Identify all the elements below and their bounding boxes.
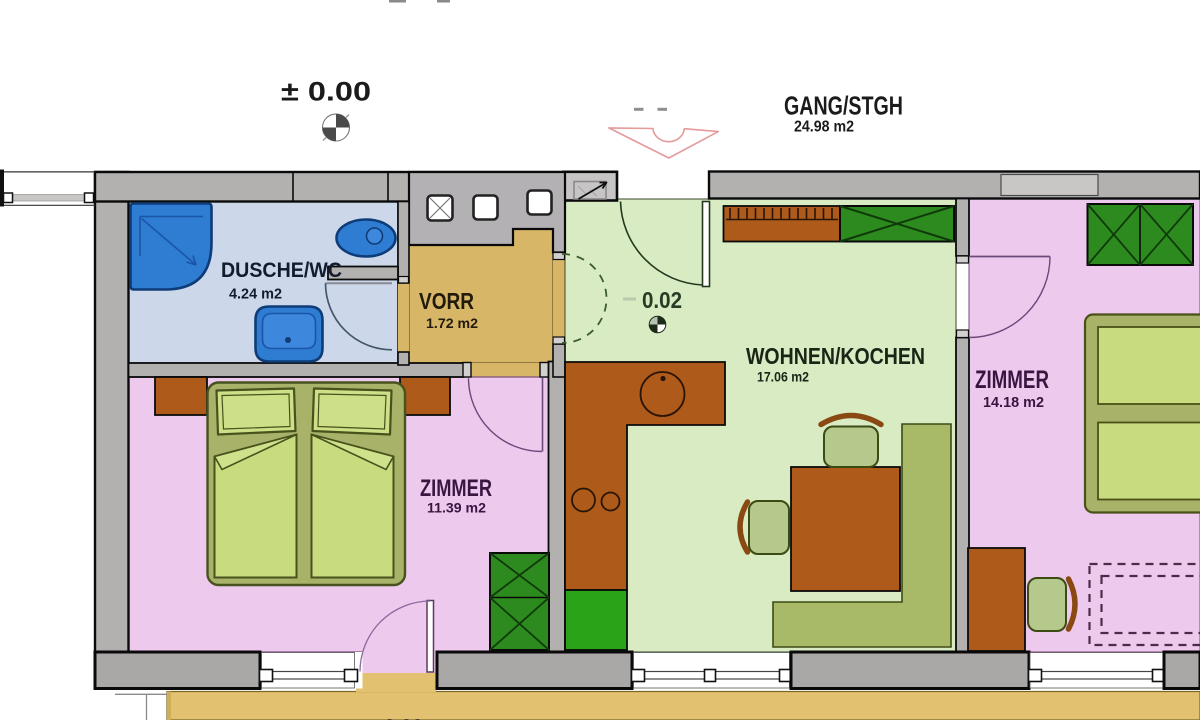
svg-text:GANG/STGH: GANG/STGH bbox=[784, 91, 903, 121]
svg-text:WOHNEN/KOCHEN: WOHNEN/KOCHEN bbox=[746, 343, 925, 369]
svg-text:0.02: 0.02 bbox=[642, 287, 682, 313]
svg-text:VORR: VORR bbox=[419, 288, 474, 314]
svg-text:4.24 m2: 4.24 m2 bbox=[229, 287, 282, 303]
svg-text:11.39 m2: 11.39 m2 bbox=[427, 500, 486, 516]
svg-text:1.72 m2: 1.72 m2 bbox=[426, 315, 478, 331]
svg-text:14.18 m2: 14.18 m2 bbox=[983, 394, 1044, 411]
svg-text:17.06 m2: 17.06 m2 bbox=[757, 369, 809, 385]
svg-text:ZIMMER: ZIMMER bbox=[975, 366, 1049, 394]
svg-text:± 0.00: ± 0.00 bbox=[281, 77, 371, 107]
svg-text:0.00: 0.00 bbox=[384, 714, 423, 720]
svg-text:24.98 m2: 24.98 m2 bbox=[794, 119, 854, 136]
svg-text:ZIMMER: ZIMMER bbox=[420, 475, 492, 502]
svg-text:DUSCHE/WC: DUSCHE/WC bbox=[221, 258, 342, 282]
